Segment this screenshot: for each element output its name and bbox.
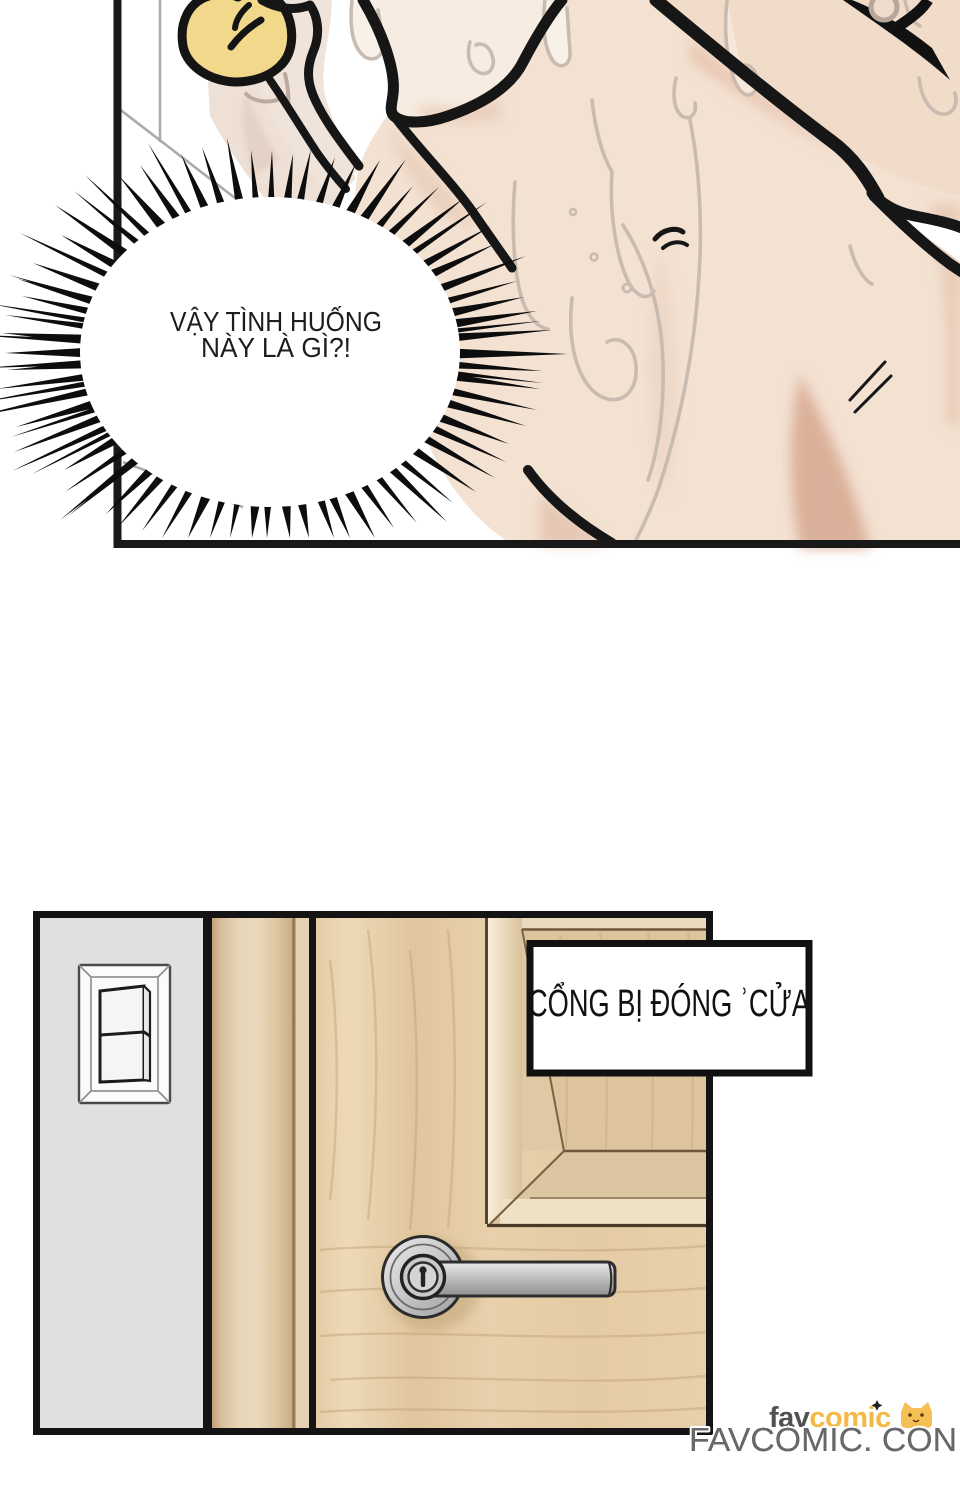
svg-text:NÀY LÀ GÌ?!: NÀY LÀ GÌ?!: [201, 332, 351, 363]
svg-text:FAVCOMIC. CON: FAVCOMIC. CON: [689, 1422, 957, 1459]
svg-text:CỔNG BỊ ĐÓNG ʾCỬA: CỔNG BỊ ĐÓNG ʾCỬA: [528, 980, 810, 1025]
